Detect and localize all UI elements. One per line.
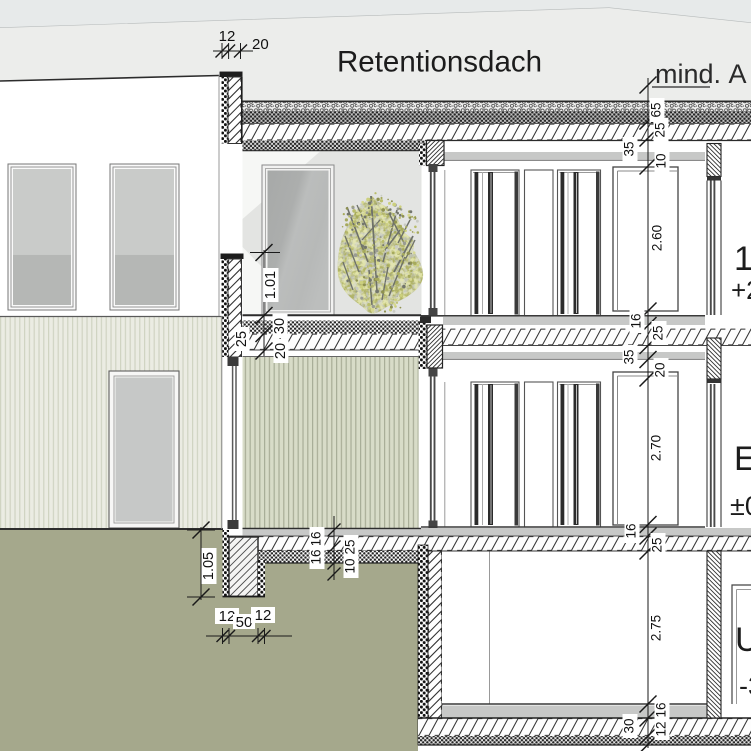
svg-text:2.60: 2.60 — [650, 225, 665, 251]
svg-text:2.70: 2.70 — [649, 435, 664, 461]
svg-text:12: 12 — [654, 721, 669, 736]
svg-text:2.75: 2.75 — [649, 615, 664, 641]
svg-text:1.: 1. — [734, 240, 751, 278]
svg-text:20: 20 — [273, 343, 289, 359]
svg-text:U: U — [735, 621, 751, 659]
svg-text:+2: +2 — [731, 275, 751, 305]
svg-text:mind. A: mind. A — [655, 59, 747, 89]
svg-text:20: 20 — [653, 362, 668, 377]
svg-text:35: 35 — [622, 141, 637, 156]
svg-text:50: 50 — [236, 614, 253, 631]
svg-text:±0: ±0 — [730, 491, 751, 521]
svg-text:10: 10 — [654, 153, 669, 168]
svg-text:1.05: 1.05 — [201, 552, 217, 580]
svg-text:16: 16 — [309, 549, 324, 564]
svg-text:35: 35 — [622, 349, 637, 364]
svg-text:1.01: 1.01 — [263, 271, 279, 299]
svg-text:E: E — [734, 440, 751, 478]
svg-text:12: 12 — [219, 608, 236, 625]
svg-text:25: 25 — [651, 325, 666, 340]
svg-text:12: 12 — [219, 28, 236, 45]
svg-text:Retentionsdach: Retentionsdach — [337, 46, 542, 79]
svg-text:-3: -3 — [739, 671, 751, 701]
svg-text:25: 25 — [234, 331, 250, 347]
svg-text:25: 25 — [343, 539, 358, 554]
svg-text:20: 20 — [252, 36, 269, 53]
svg-text:16: 16 — [309, 531, 324, 546]
svg-text:16: 16 — [624, 523, 639, 538]
svg-text:25: 25 — [650, 537, 665, 552]
svg-text:16: 16 — [629, 313, 644, 328]
svg-text:30: 30 — [272, 318, 288, 334]
svg-text:30: 30 — [622, 718, 637, 733]
svg-text:12: 12 — [255, 607, 272, 624]
svg-text:16: 16 — [654, 702, 669, 717]
svg-text:25: 25 — [653, 122, 668, 137]
svg-text:65: 65 — [649, 102, 664, 117]
svg-text:10: 10 — [343, 558, 358, 573]
